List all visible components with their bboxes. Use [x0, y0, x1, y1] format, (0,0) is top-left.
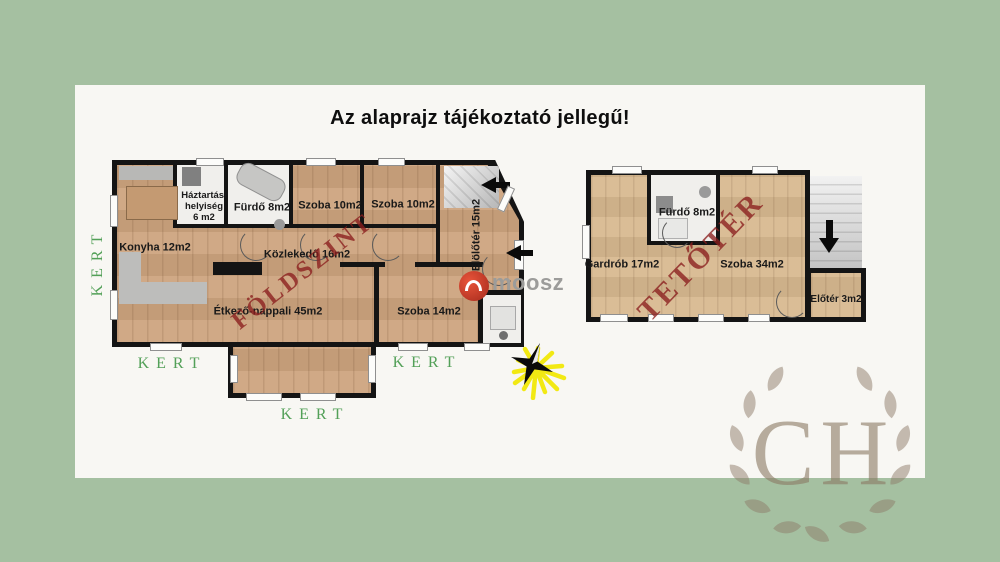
wc-sink: [490, 306, 516, 330]
garden-label-bottom-right: KERT: [393, 354, 462, 372]
attic-arrow-icon: [819, 238, 839, 253]
door-arc: [776, 286, 808, 318]
wall: [374, 262, 379, 347]
window: [300, 393, 336, 401]
entry-arrow-icon: [481, 177, 496, 193]
window: [612, 166, 642, 174]
wall: [173, 224, 440, 228]
window: [246, 393, 282, 401]
attic-stairs: [808, 176, 862, 272]
kitchen-table: [126, 186, 178, 220]
wall: [478, 292, 483, 347]
terrace-floor: [233, 342, 371, 393]
window: [378, 158, 405, 166]
wall: [436, 165, 440, 263]
room-label-furdo: Fürdő 8m2: [234, 202, 290, 215]
room-label-attic-furdo: Fürdő 8m2: [659, 207, 715, 220]
page-title: Az alaprajz tájékoztató jellegű!: [290, 107, 670, 130]
toilet: [274, 219, 285, 230]
room-label-szoba-34: Szoba 34m2: [720, 259, 784, 272]
room-label-konyha: Konyha 12m2: [119, 242, 191, 255]
door-arc: [662, 218, 692, 248]
window: [748, 314, 770, 322]
kitchen-counter: [119, 282, 207, 304]
window: [600, 314, 628, 322]
door-arc: [372, 229, 404, 261]
wall: [289, 165, 293, 228]
room-label-gardrob: Gardrób 17m2: [585, 259, 660, 272]
attic-arrow-tail: [826, 220, 833, 238]
window: [230, 355, 238, 383]
window: [196, 158, 224, 166]
room-label-haztartasi: Háztartási helyiség 6 m2: [181, 190, 226, 224]
window: [110, 195, 118, 227]
window: [464, 343, 490, 351]
attic-sink: [699, 186, 711, 198]
window: [150, 343, 182, 351]
window: [398, 343, 428, 351]
window: [582, 225, 590, 259]
moosz-logo-icon: [459, 271, 489, 301]
room-label-eloter: Elölőtér 15m2: [471, 199, 484, 271]
room-label-line: Háztartási: [181, 190, 226, 201]
kitchen-counter: [119, 166, 173, 180]
room-label-szoba-b: Szoba 10m2: [371, 199, 435, 212]
garden-label-left: KERT: [89, 228, 107, 297]
window: [368, 355, 376, 383]
wall: [647, 175, 651, 245]
window: [110, 290, 118, 320]
garden-label-bottom-left: KERT: [138, 355, 207, 373]
floorplan-image: Az alaprajz tájékoztató jellegű!: [0, 0, 1000, 562]
room-label-line: helyiség: [181, 201, 226, 212]
window: [752, 166, 778, 174]
moosz-logo-text: moosz: [492, 270, 564, 296]
compass-north-icon: [502, 328, 572, 400]
washing-machine: [182, 167, 201, 186]
room-label-szoba-a: Szoba 10m2: [298, 200, 362, 213]
room-label-szoba-c: Szoba 14m2: [397, 306, 461, 319]
wall-stub: [213, 262, 262, 275]
entrance-arrow-tail: [521, 250, 533, 256]
window: [306, 158, 336, 166]
room-label-line: 6 m2: [181, 213, 226, 224]
garden-label-bottom-center: KERT: [281, 406, 350, 424]
ch-logo-text: CH: [748, 404, 898, 503]
window: [698, 314, 724, 322]
room-label-attic-eloter: Előtér 3m2: [810, 294, 861, 306]
moosz-logo-glyph: [465, 280, 482, 291]
